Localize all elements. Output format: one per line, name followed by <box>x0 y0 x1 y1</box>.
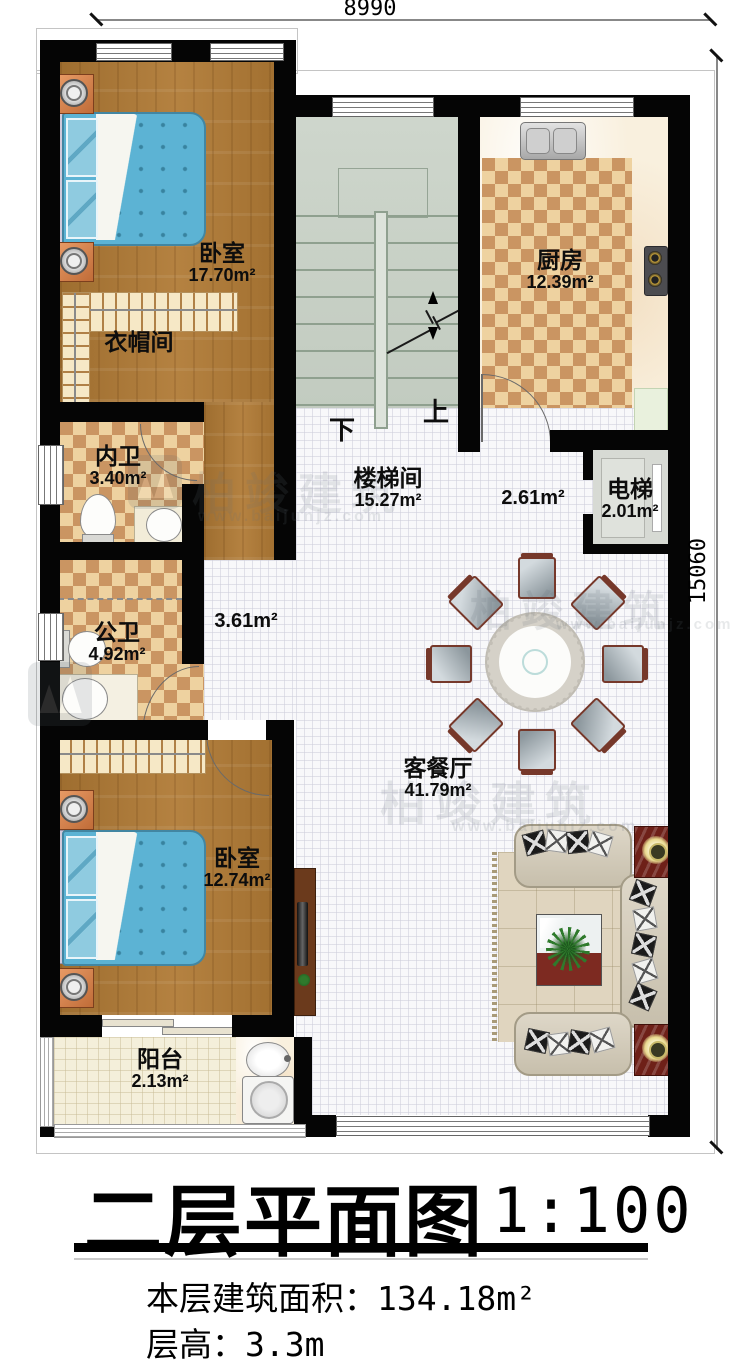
label-bedroom-2: 卧室 12.74m² <box>177 846 297 891</box>
watermark-url: www.baijunjz.com <box>556 616 733 633</box>
room-name: 衣帽间 <box>84 330 194 355</box>
bed-1-pillow-bottom <box>66 180 98 239</box>
label-hall-lower-area: 3.61m² <box>196 610 296 632</box>
bed-2-sheet <box>96 832 148 960</box>
dining-chair <box>602 645 644 683</box>
bed-1-sheet <box>96 114 148 240</box>
room-name: 公卫 <box>62 620 172 645</box>
wall <box>40 1015 102 1037</box>
balcony-railing <box>40 1037 54 1127</box>
stair-direction: 下 <box>322 416 362 444</box>
stair-stringer <box>374 211 388 429</box>
room-name: 客餐厅 <box>378 756 498 781</box>
window <box>336 1116 650 1136</box>
wall <box>294 1037 312 1137</box>
faucet-icon <box>284 1055 291 1062</box>
watermark-url: www.baijunjz.com <box>452 818 638 836</box>
label-living-dining: 客餐厅 41.79m² <box>378 756 498 801</box>
sliding-door-panel <box>162 1027 234 1035</box>
window <box>38 445 64 505</box>
watermark-url: www.baijunjz.com <box>198 508 384 526</box>
room-name: 内卫 <box>68 444 168 469</box>
label-stair-up: 上 <box>416 398 456 426</box>
room-area: 3.61m² <box>196 610 296 632</box>
label-elevator: 电梯 2.01m² <box>570 477 690 522</box>
floor-area-line: 本层建筑面积：134.18m² <box>146 1272 536 1320</box>
label-stair-down: 下 <box>322 416 362 444</box>
sofa-pillow <box>524 1028 550 1054</box>
room-area: 2.01m² <box>570 502 690 522</box>
room-area: 41.79m² <box>378 781 498 801</box>
floor-area-value: 134.18m² <box>377 1279 536 1318</box>
dimension-value-right: 15060 <box>686 538 711 604</box>
wall <box>232 1015 294 1037</box>
kitchen-mat <box>634 388 668 432</box>
hall-floor <box>204 560 296 720</box>
room-area: 2.13m² <box>105 1072 215 1092</box>
label-cloakroom: 衣帽间 <box>84 330 194 355</box>
bed-2-pillow-top <box>66 836 98 896</box>
wall <box>648 1115 690 1137</box>
floor-height-value: 3.3m <box>245 1325 324 1364</box>
dining-chair <box>518 729 556 771</box>
room-name: 楼梯间 <box>328 466 448 491</box>
room-name: 卧室 <box>177 846 297 871</box>
lamp-ring-icon <box>66 253 82 269</box>
sofa-pillow <box>631 932 657 958</box>
plant-icon <box>546 927 590 971</box>
room-area: 2.61m² <box>483 487 583 509</box>
room-name: 阳台 <box>105 1047 215 1072</box>
room-name: 厨房 <box>500 248 620 273</box>
window <box>520 97 634 117</box>
room-area: 17.70m² <box>162 266 282 286</box>
table-lamp-core <box>649 843 667 861</box>
stair-direction: 上 <box>416 398 456 426</box>
sink-basin-icon <box>146 508 182 542</box>
drawing-title: 二层平面图 <box>84 1160 484 1272</box>
kitchen-sink-bowl <box>553 128 577 154</box>
label-hall-upper-area: 2.61m² <box>483 487 583 509</box>
bedroom-2-closet-rack <box>56 736 206 774</box>
title-underline <box>74 1243 648 1252</box>
burner-icon <box>648 273 662 287</box>
door-leaf-kitchen <box>481 374 483 442</box>
wall <box>458 117 480 452</box>
dimension-value-top: 8990 <box>330 0 410 21</box>
label-kitchen: 厨房 12.39m² <box>500 248 620 293</box>
shower-line <box>58 598 182 600</box>
floor-area-label: 本层建筑面积： <box>146 1280 377 1317</box>
kitchen-sink-bowl <box>526 128 550 154</box>
window <box>332 97 434 117</box>
stair-arrow-down-icon <box>428 327 438 340</box>
room-area: 12.39m² <box>500 273 620 293</box>
bed-1-pillow-top <box>66 118 98 177</box>
room-area: 4.92m² <box>62 645 172 665</box>
dining-chair <box>430 645 472 683</box>
floor-height-label: 层高： <box>146 1326 245 1363</box>
room-name: 卧室 <box>162 241 282 266</box>
label-stairwell: 楼梯间 15.27m² <box>328 466 448 511</box>
table-lamp-core <box>649 1041 667 1059</box>
title-underline-thin <box>74 1258 648 1260</box>
watermark-logo-icon <box>28 662 92 726</box>
wall <box>60 402 204 422</box>
sliding-door-panel <box>102 1019 174 1027</box>
elevator-shaft-wall <box>583 440 690 450</box>
burner-icon <box>648 251 662 265</box>
window <box>210 43 284 61</box>
tv-icon <box>297 902 308 966</box>
balcony-railing <box>54 1124 306 1138</box>
window <box>38 613 64 661</box>
room-area: 15.27m² <box>328 491 448 511</box>
sofa-pillow <box>632 906 657 931</box>
dining-table-center <box>522 649 548 675</box>
elevator-shaft-wall <box>583 448 593 480</box>
cloakroom-rack-top <box>88 292 238 332</box>
lamp-ring-icon <box>66 979 82 995</box>
wall <box>40 40 60 1037</box>
label-public-bath: 公卫 4.92m² <box>62 620 172 665</box>
floorplan-canvas: 柏竣建筑 www.baijunjz.com 柏竣建筑 www.baijunjz.… <box>0 0 750 1364</box>
bed-2-pillow-bottom <box>66 899 98 959</box>
dimension-line-right <box>716 56 718 1150</box>
lamp-ring-icon <box>66 85 82 101</box>
stair-arrow-up-icon <box>428 291 438 304</box>
room-name: 电梯 <box>570 477 690 502</box>
label-balcony: 阳台 2.13m² <box>105 1047 215 1092</box>
wall <box>60 542 204 560</box>
room-area: 12.74m² <box>177 871 297 891</box>
floor-height-line: 层高：3.3m <box>146 1318 324 1364</box>
drawing-scale: 1:100 <box>492 1174 694 1247</box>
window <box>96 43 172 61</box>
label-inner-bath: 内卫 3.40m² <box>68 444 168 489</box>
plant-icon <box>298 974 310 986</box>
washer-drum-icon <box>250 1081 288 1119</box>
elevator-shaft-wall <box>583 544 690 554</box>
wall <box>312 1115 336 1137</box>
label-bedroom-1: 卧室 17.70m² <box>162 241 282 286</box>
lamp-ring-icon <box>66 801 82 817</box>
room-area: 3.40m² <box>68 469 168 489</box>
rug-fringe <box>492 852 497 1042</box>
